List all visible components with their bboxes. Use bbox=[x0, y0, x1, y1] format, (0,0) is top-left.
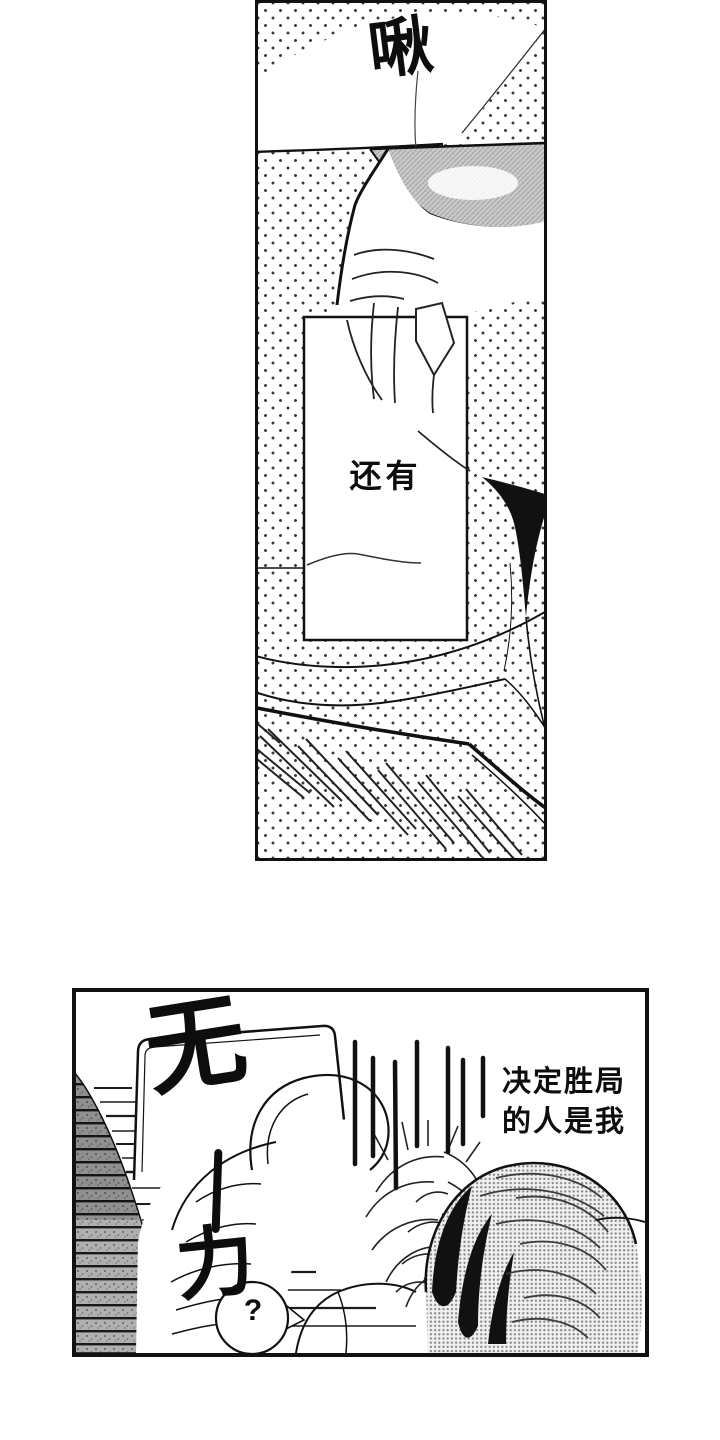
question-mark-text: ? bbox=[233, 1294, 273, 1328]
top-panel-artwork bbox=[258, 3, 544, 858]
shaded-band-art bbox=[370, 143, 544, 228]
wall-wedge-art bbox=[76, 1072, 174, 1353]
dialogue-text: 决定胜局 的人是我 bbox=[502, 1062, 626, 1142]
body-curves-art bbox=[258, 568, 544, 827]
panel-top: 啾 还有 bbox=[255, 0, 547, 861]
dialogue-line-1: 决定胜局 bbox=[502, 1062, 626, 1102]
finger-lines-art bbox=[347, 250, 470, 471]
impact-sfx-char1: 无 bbox=[139, 989, 253, 1103]
caption-text: 还有 bbox=[304, 451, 467, 497]
blond-hair-art bbox=[366, 1120, 484, 1318]
emphasis-lines-art bbox=[355, 1042, 483, 1188]
kiss-sfx-text: 啾 bbox=[363, 0, 438, 93]
hand-art bbox=[336, 149, 544, 373]
panel-bottom: 无 力 决定胜局 的人是我 ? bbox=[72, 988, 649, 1357]
fold-line-art bbox=[307, 553, 421, 565]
impact-sfx-char2: 力 bbox=[172, 1220, 258, 1306]
manga-page: 啾 还有 bbox=[0, 0, 720, 1440]
ribbed-sleeve-art bbox=[258, 719, 522, 858]
lying-character-art bbox=[136, 1075, 508, 1353]
dark-hair-head-art bbox=[426, 1163, 645, 1353]
dark-hair-wedge-art bbox=[482, 477, 544, 747]
dialogue-line-2: 的人是我 bbox=[502, 1102, 626, 1142]
